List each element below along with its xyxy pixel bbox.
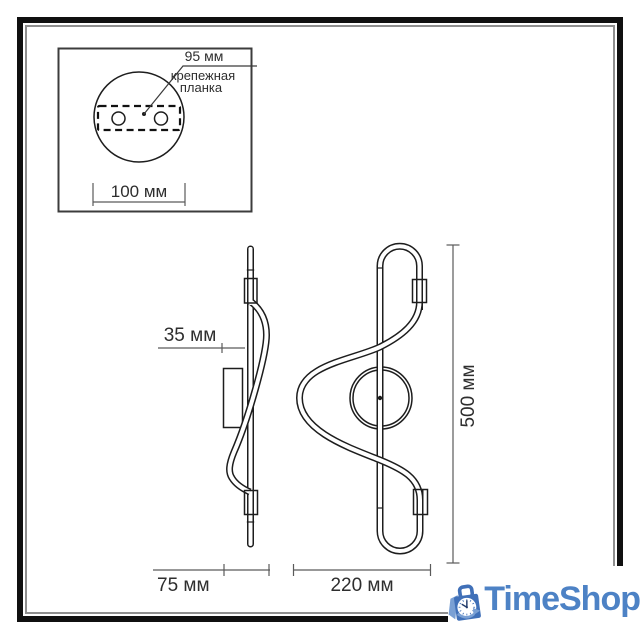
base-width-label: 100 мм — [111, 182, 167, 201]
timeshop-watermark: TimeShop — [448, 566, 640, 640]
canopy-center-dot — [378, 396, 382, 400]
height-label: 500 мм — [458, 364, 479, 427]
part-name-line2: планка — [180, 80, 223, 95]
width-label: 220 мм — [330, 575, 393, 596]
lamp-technical-drawing: 95 мм крепежная планка 100 мм 35 мм 75 м… — [0, 0, 640, 640]
tube-offset-label: 35 мм — [164, 325, 217, 346]
wall-mount-side — [224, 369, 243, 428]
clock-shopping-bag-icon — [448, 570, 483, 636]
hole-spacing-label: 95 мм — [185, 48, 224, 64]
brand-name: TimeShop — [484, 580, 640, 619]
tube-front-s-curve-core — [300, 302, 421, 500]
clock-center — [466, 606, 468, 608]
lamp-front-view: 220 мм 500 мм — [294, 245, 480, 596]
depth-label: 75 мм — [157, 575, 210, 596]
mounting-detail-inset: 95 мм крепежная планка 100 мм — [59, 48, 258, 212]
lamp-side-view: 35 мм 75 мм — [153, 249, 270, 596]
